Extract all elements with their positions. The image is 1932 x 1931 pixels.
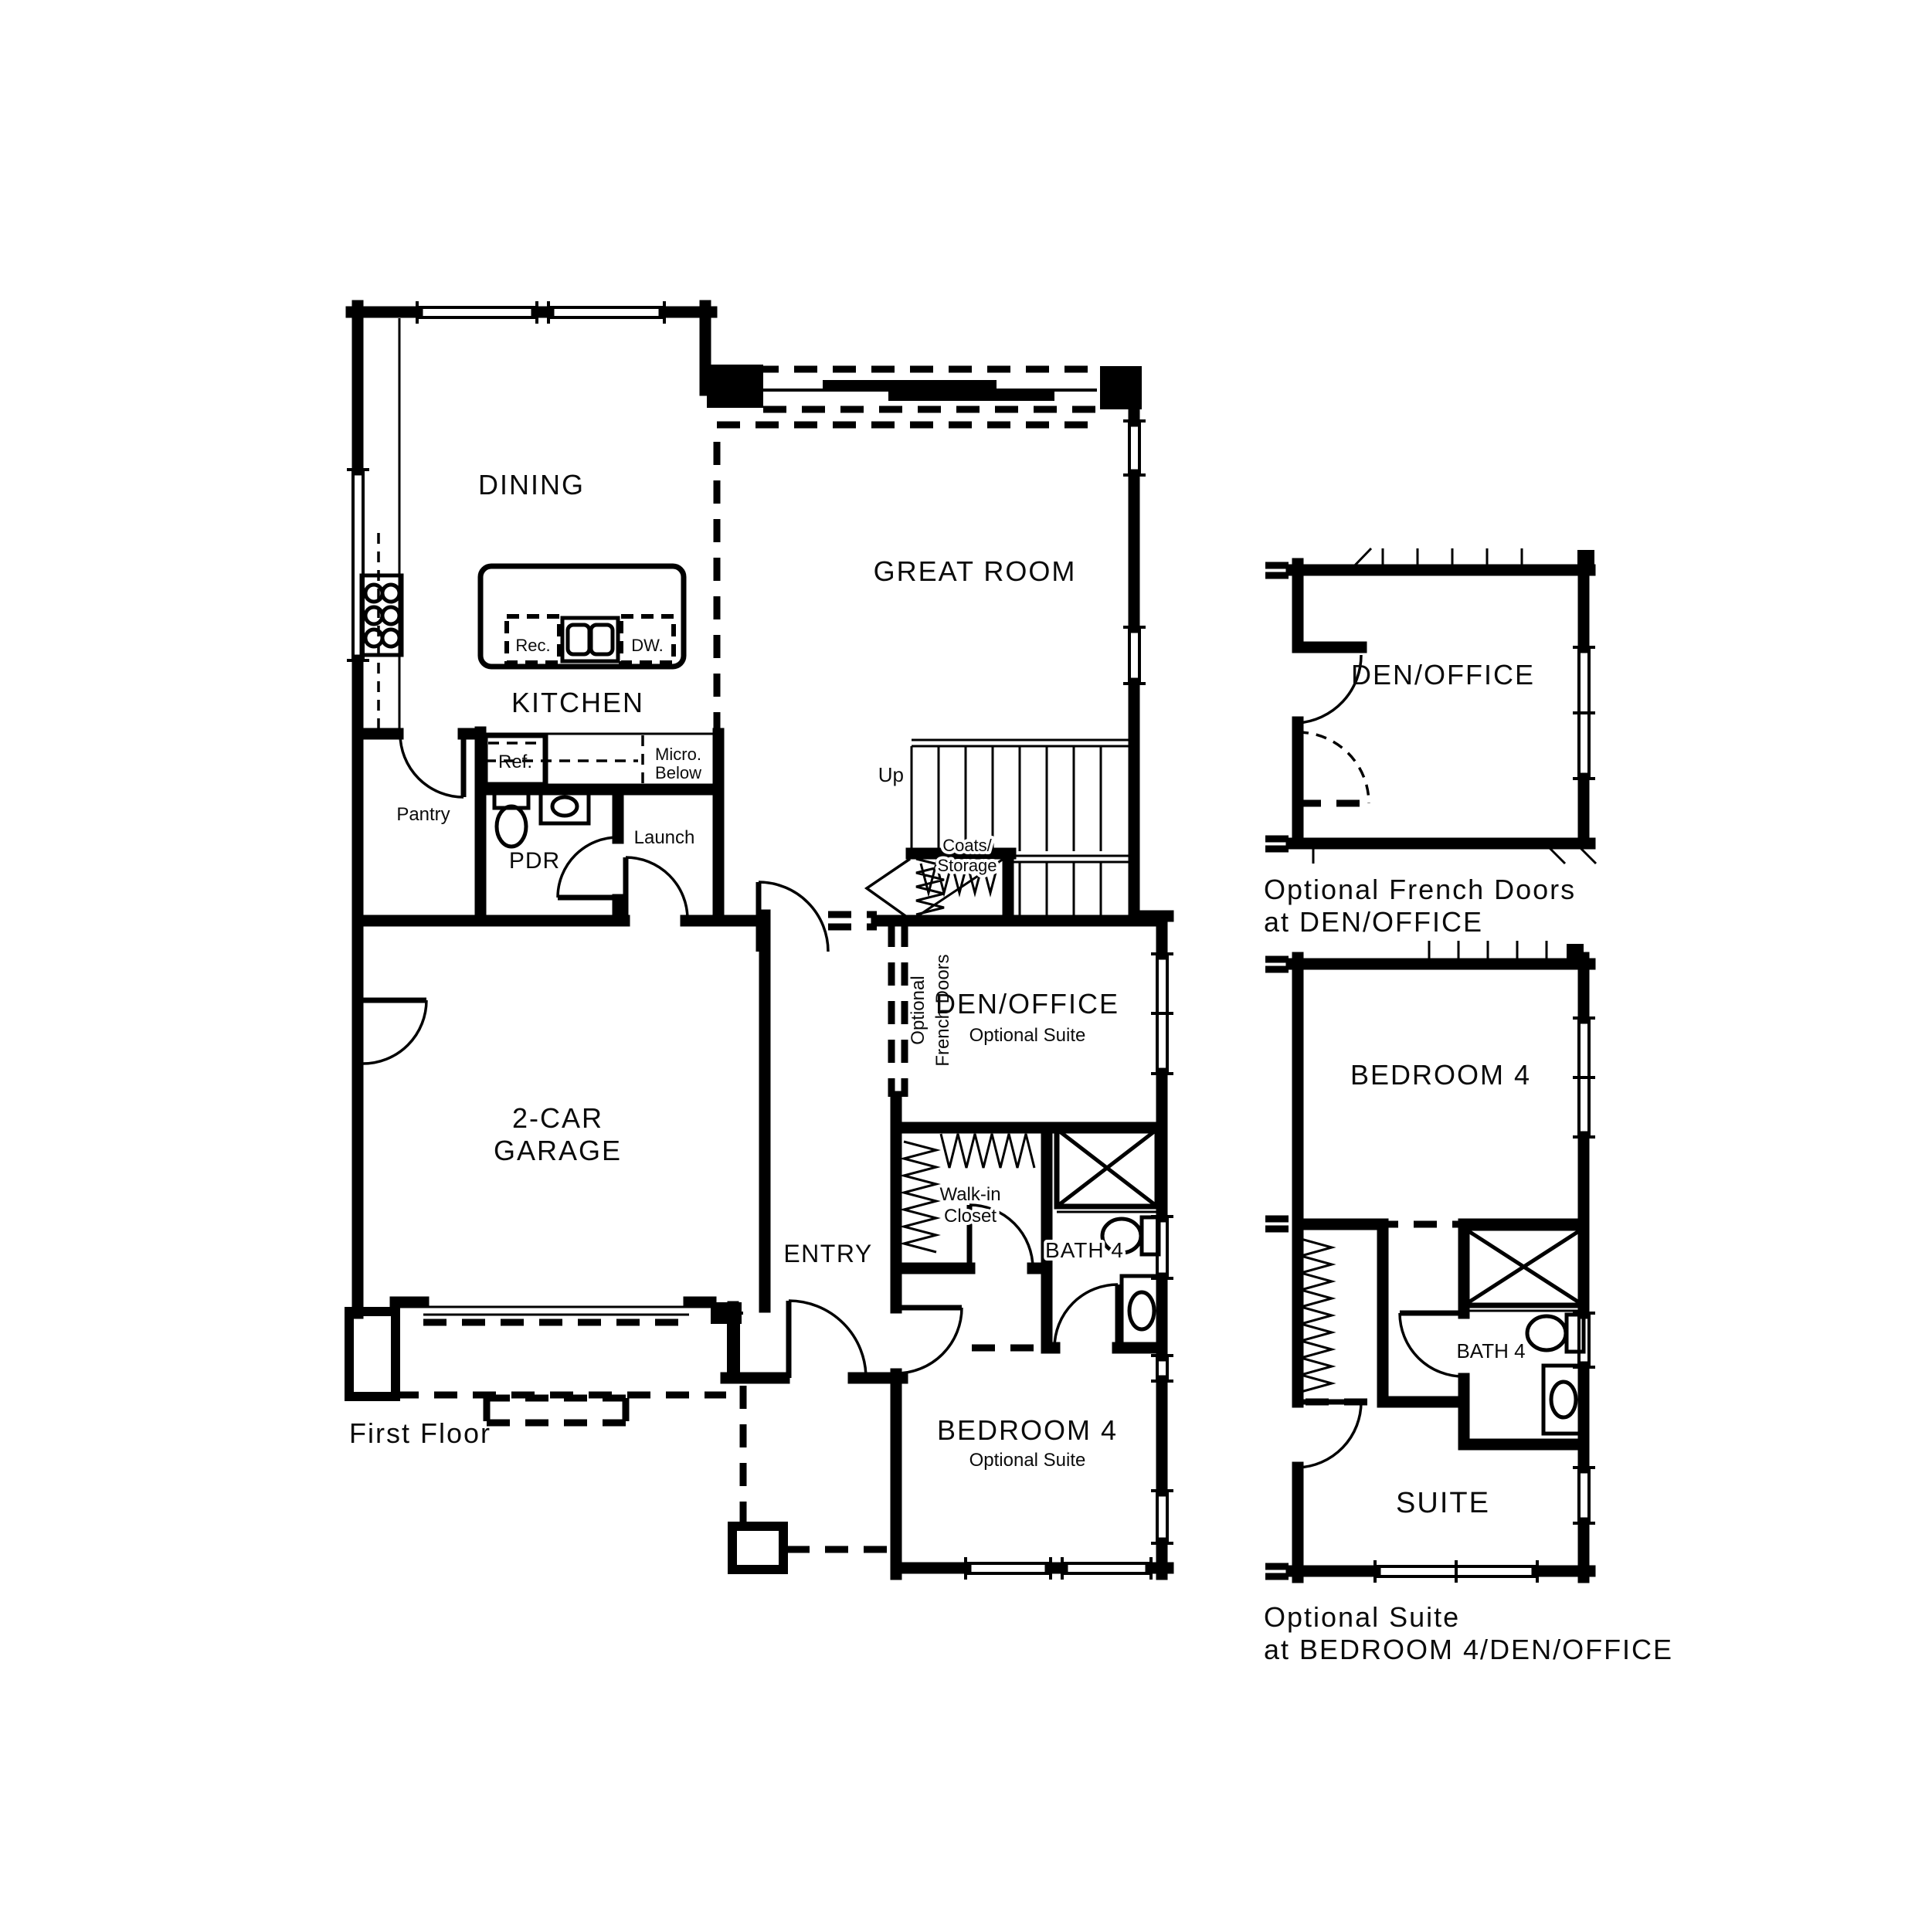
inset-den-room-label: DEN/OFFICE [1351,659,1535,691]
inset-den-caption-line1: Optional French Doors [1264,874,1576,905]
inset-den-office-option: DEN/OFFICE Optional French Doors at DEN/… [1264,548,1596,938]
coats-storage-label-line1: Coats/ [942,836,992,855]
inset-suite-corner-nub [1567,944,1584,964]
inset-den-caption-line2: at DEN/OFFICE [1264,906,1483,938]
floor-plan-drawing: DINING GREAT ROOM KITCHEN Rec. DW. Ref. … [0,0,1932,1931]
micro-label-line2: Below [655,763,701,782]
micro-label-line1: Micro. [655,745,701,764]
inset-suite-toilet [1527,1315,1584,1352]
bath4-vanity [1122,1276,1162,1346]
walk-in-closet-label-line1: Walk-in [939,1184,1000,1205]
walk-in-closet-label-line2: Closet [944,1206,997,1227]
bedroom4-sub-label: Optional Suite [969,1450,1086,1471]
room-label-garage-line1: 2-CAR [512,1102,603,1134]
stairs-up-label: Up [878,763,904,786]
slider-panel [888,391,1054,401]
porch-column [732,1526,783,1570]
inset-suite-bedroom4-label: BEDROOM 4 [1350,1059,1531,1091]
room-label-entry: ENTRY [783,1240,872,1268]
den-office-sub-label: Optional Suite [969,1025,1086,1046]
room-label-den-office: DEN/OFFICE [935,988,1119,1020]
inset-den-ticks [1313,548,1596,864]
room-label-dining: DINING [478,469,585,501]
porch-pillar [349,1312,396,1396]
main-plan: DINING GREAT ROOM KITCHEN Rec. DW. Ref. … [347,301,1173,1580]
room-label-garage-line2: GARAGE [494,1135,622,1166]
inset-den-walls [1292,564,1590,843]
floor-plan-page: DINING GREAT ROOM KITCHEN Rec. DW. Ref. … [0,0,1932,1931]
ref-label: Ref. [498,752,532,772]
room-label-bedroom4: BEDROOM 4 [937,1414,1118,1446]
room-label-pantry: Pantry [396,804,450,825]
inset-suite-suite-label: SUITE [1396,1487,1490,1519]
room-label-laundry: Launch [634,827,695,848]
slider-jamb-right [1100,366,1142,409]
room-label-kitchen: KITCHEN [511,687,644,718]
plan-caption-first-floor: First Floor [349,1417,491,1449]
inset-suite-walls [1292,958,1590,1577]
island-dw-label: DW. [631,636,664,655]
inset-suite-closet-hatch [1301,1239,1332,1392]
room-label-bath4: BATH 4 [1045,1238,1124,1262]
optional-french-doors-label-line2: French Doors [932,954,953,1066]
inset-optional-suite: BEDROOM 4 BATH 4 SUITE Optional Suite at… [1264,941,1673,1665]
cooktop [362,575,402,655]
bath4-shower [1057,1129,1157,1206]
inset-suite-bath4-label: BATH 4 [1456,1339,1525,1363]
optional-french-doors-label-line1: Optional [908,976,929,1044]
room-label-great-room: GREAT ROOM [874,555,1077,587]
inset-den-stub-dashes [1265,565,1369,849]
inset-suite-caption-line1: Optional Suite [1264,1601,1460,1633]
inset-suite-caption-line2: at BEDROOM 4/DEN/OFFICE [1264,1634,1673,1665]
inset-suite-vanity [1543,1366,1584,1434]
island-rec-label: Rec. [515,636,550,655]
room-label-pdr: PDR [509,848,560,874]
inset-den-french-door-dashed [1298,732,1369,803]
inset-suite-shower [1464,1228,1584,1305]
pdr-toilet [494,792,528,847]
inset-den-corner-nub [1577,550,1594,570]
coats-storage-label-line2: Storage [937,856,997,875]
inset-den-window [1573,647,1595,779]
